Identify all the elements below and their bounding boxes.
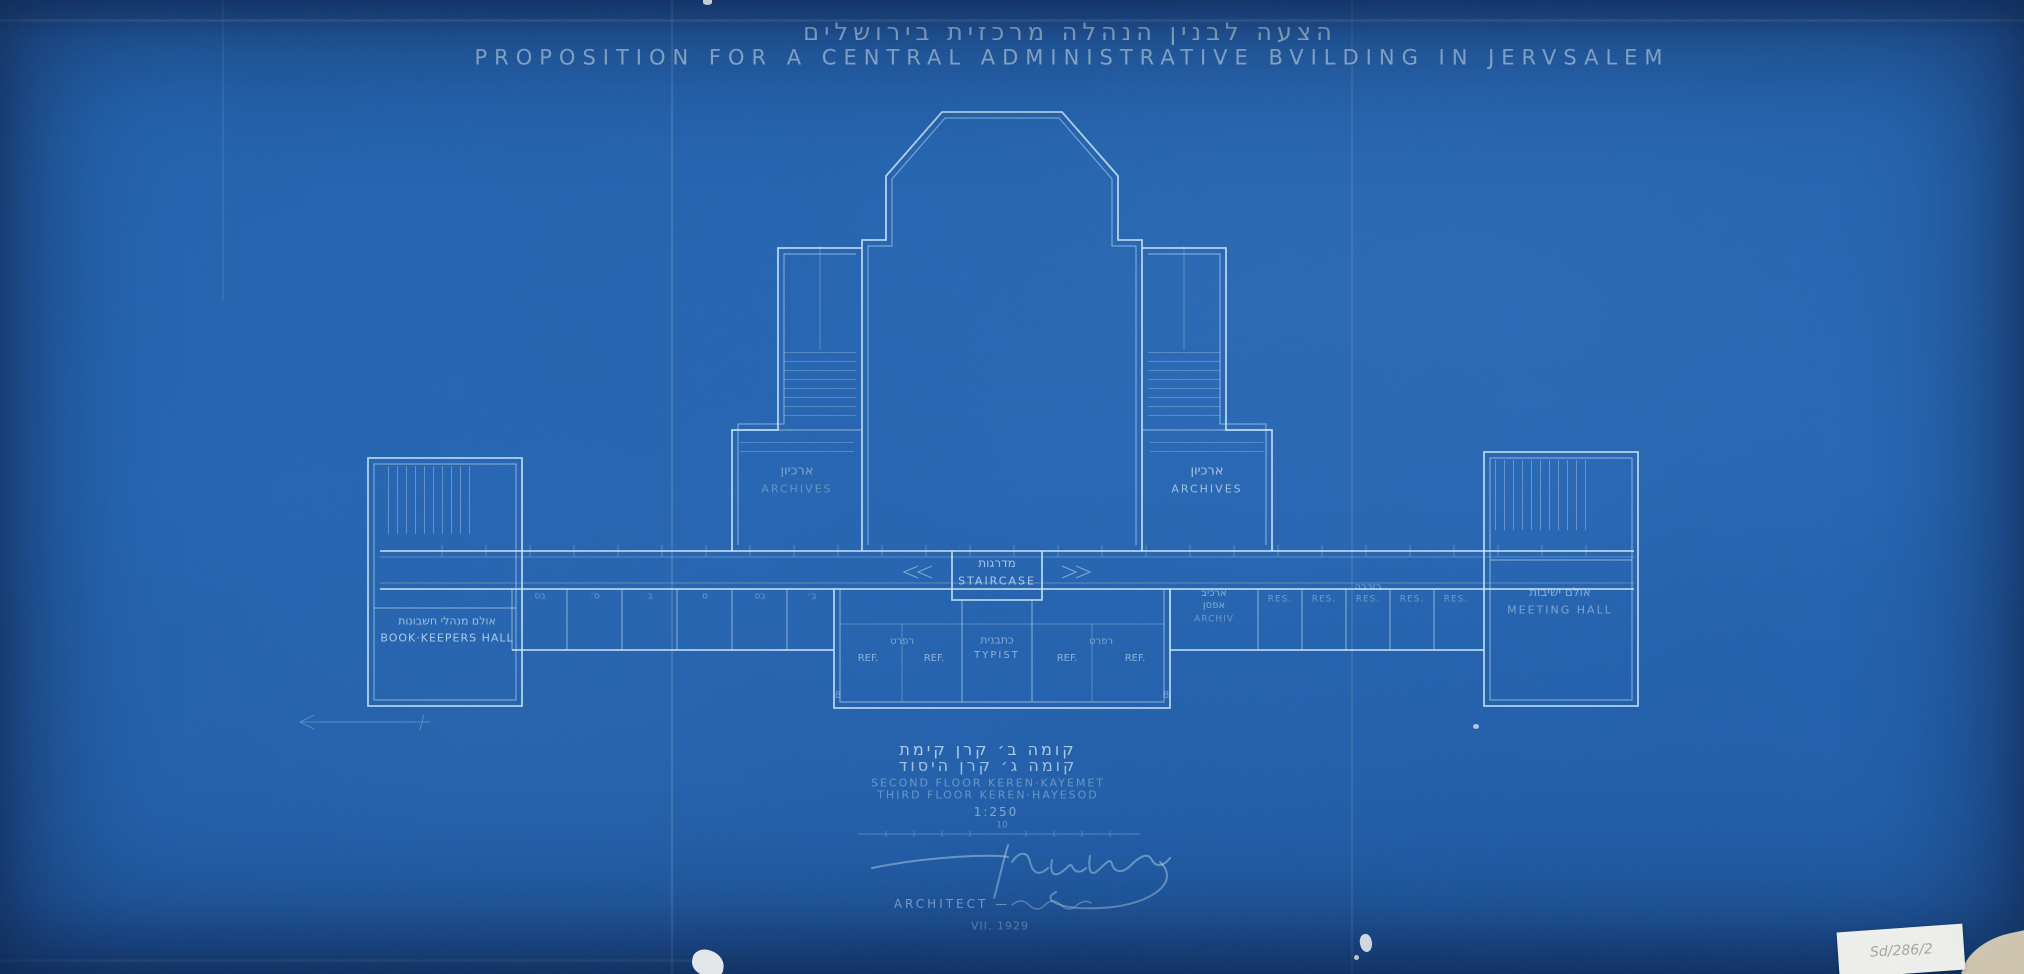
archive-cell-he1: ארכיב	[1201, 589, 1227, 599]
staircase-label-he: מדרגות	[978, 557, 1016, 569]
stair-and-shelf-hatching	[382, 352, 1620, 557]
inner-walls	[374, 118, 1632, 702]
res-label: RES.	[1444, 596, 1469, 605]
title-english: PROPOSITION FOR A CENTRAL ADMINISTRATIVE…	[474, 48, 1669, 69]
corner-mark: 8	[835, 691, 841, 701]
catalog-sticker-text: Sd/286/2	[1869, 941, 1933, 960]
blueprint-sheet: הצעה לבנין הנהלה מרכזית בירושלים PROPOSI…	[0, 0, 2024, 974]
res-label: RES.	[1356, 596, 1381, 605]
ref-label: REF.	[858, 654, 879, 664]
legend-english-line2: THIRD FLOOR KEREN·HAYESOD	[877, 790, 1099, 801]
typist-label-en: TYPIST	[974, 651, 1020, 661]
left-wing-cell-label: בס	[534, 593, 545, 602]
archive-cell-en: ARCHIV	[1194, 616, 1234, 625]
ref-label: REF.	[924, 654, 945, 664]
corner-mark: 8	[1163, 691, 1169, 701]
archives-right-label-he: ארכיון	[1191, 465, 1224, 478]
scale-text: 1:250	[974, 806, 1019, 818]
archives-right-label-en: ARCHIVES	[1171, 484, 1242, 495]
drawing-date: VII. 1929	[971, 921, 1029, 932]
paper-notch-top	[703, 0, 712, 5]
left-wing-cell-label: ס	[702, 593, 708, 602]
meeting-hall-label-en: MEETING HALL	[1507, 605, 1613, 616]
archives-left-label-en: ARCHIVES	[761, 484, 832, 495]
architect-role-label: ARCHITECT —	[894, 898, 1010, 910]
outer-walls	[368, 112, 1638, 708]
ref-room-right-he: רפרט	[1089, 637, 1113, 647]
book-keepers-hall-label-en: BOOK·KEEPERS HALL	[380, 633, 513, 644]
left-wing-cell-label: ב	[647, 593, 652, 602]
meeting-hall-label-he: אולם ישיבות	[1529, 586, 1591, 598]
legend-hebrew-line2: קומה ג׳ קרן היסוד	[899, 758, 1078, 774]
ref-label: REF.	[1057, 654, 1078, 664]
archive-cell-he2: אפסן	[1203, 601, 1225, 611]
scale-bar-number: 10	[996, 822, 1007, 831]
typist-label-he: כתבנית	[980, 635, 1014, 646]
paper-speck-tiny	[1473, 724, 1479, 729]
reserve-rooms-he: רזרבה	[1354, 583, 1381, 593]
ref-room-left-he: רפרט	[890, 637, 914, 647]
floor-plan-drawing	[0, 0, 2024, 974]
res-label: RES.	[1400, 596, 1425, 605]
left-wing-cell-label: בס	[754, 593, 765, 602]
book-keepers-hall-label-he: אולם מנהלי חשבונות	[398, 616, 496, 627]
staircase-label-en: STAIRCASE	[958, 576, 1036, 587]
left-wing-cell-label: ב׳	[808, 593, 817, 602]
paper-speck-small	[1354, 955, 1359, 960]
res-label: RES.	[1312, 596, 1337, 605]
ref-label: REF.	[1125, 654, 1146, 664]
legend-english-line1: SECOND FLOOR KEREN·KAYEMET	[871, 778, 1105, 789]
title-hebrew: הצעה לבנין הנהלה מרכזית בירושלים	[803, 20, 1337, 44]
res-label: RES.	[1268, 596, 1293, 605]
catalog-sticker: Sd/286/2	[1837, 924, 1966, 974]
archives-left-label-he: ארכיון	[781, 465, 814, 478]
left-wing-cell-label: ס׳	[590, 593, 600, 602]
